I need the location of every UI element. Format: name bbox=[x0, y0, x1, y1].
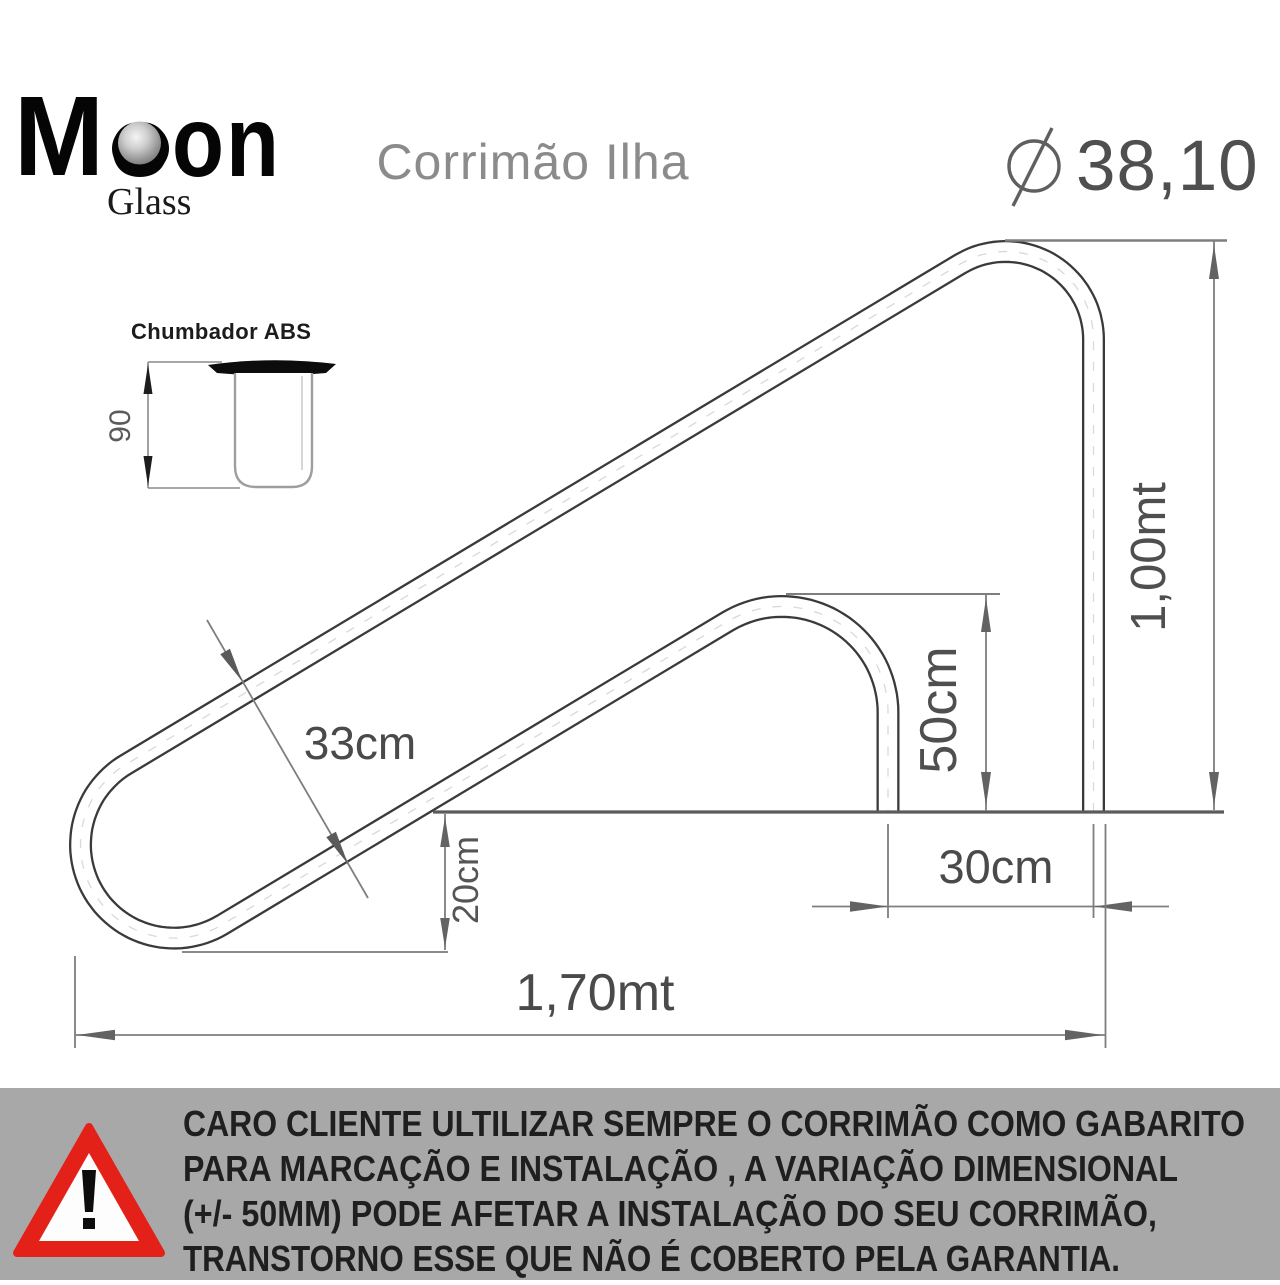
svg-text:(+/- 50MM) PODE AFETAR A INSTA: (+/- 50MM) PODE AFETAR A INSTALAÇÃO DO S… bbox=[183, 1192, 1157, 1234]
svg-text:Glass: Glass bbox=[107, 181, 191, 223]
svg-text:CARO CLIENTE ULTILIZAR SEMPRE: CARO CLIENTE ULTILIZAR SEMPRE O CORRIMÃO… bbox=[183, 1102, 1245, 1144]
svg-text:30cm: 30cm bbox=[939, 840, 1054, 893]
svg-text:1,00mt: 1,00mt bbox=[1122, 482, 1176, 632]
svg-text:Chumbador ABS: Chumbador ABS bbox=[131, 319, 311, 344]
svg-text:1,70mt: 1,70mt bbox=[516, 964, 676, 1022]
svg-text:33cm: 33cm bbox=[304, 717, 416, 769]
svg-text:M: M bbox=[14, 73, 104, 199]
svg-text:90: 90 bbox=[104, 409, 137, 442]
svg-text:38,10: 38,10 bbox=[1076, 127, 1259, 206]
svg-text:PARA MARCAÇÃO E INSTALAÇÃO , A: PARA MARCAÇÃO E INSTALAÇÃO , A VARIAÇÃO … bbox=[183, 1147, 1178, 1189]
svg-text:50cm: 50cm bbox=[910, 646, 968, 773]
svg-text:TRANSTORNO ESSE QUE NÃO É COBE: TRANSTORNO ESSE QUE NÃO É COBERTO PELA G… bbox=[183, 1237, 1120, 1279]
svg-text:n: n bbox=[226, 86, 279, 198]
svg-text:Corrimão Ilha: Corrimão Ilha bbox=[376, 134, 689, 190]
svg-text:20cm: 20cm bbox=[445, 836, 486, 924]
